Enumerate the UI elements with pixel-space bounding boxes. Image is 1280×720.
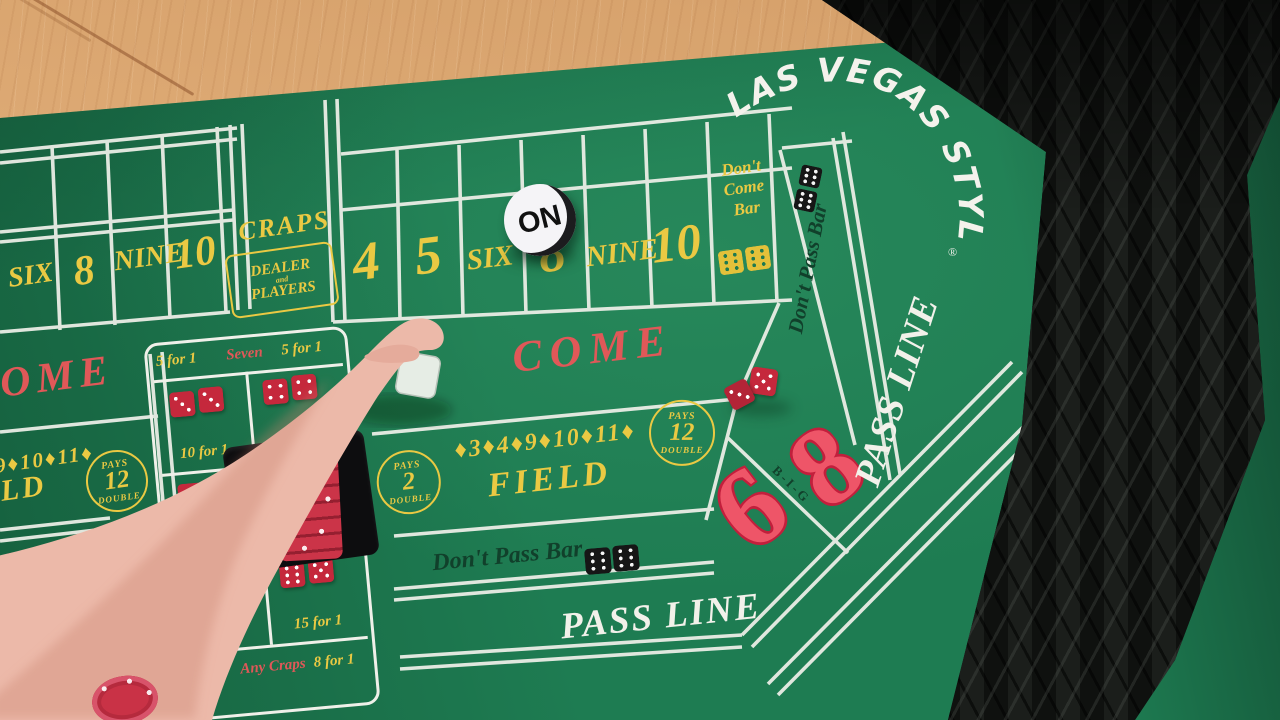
loose-chip[interactable] [89, 672, 161, 720]
finger [365, 345, 420, 363]
craps-table-photo: LAS VEGAS STYLE ® SIX 8 NINE 10 CRAPS DE… [0, 0, 1280, 720]
